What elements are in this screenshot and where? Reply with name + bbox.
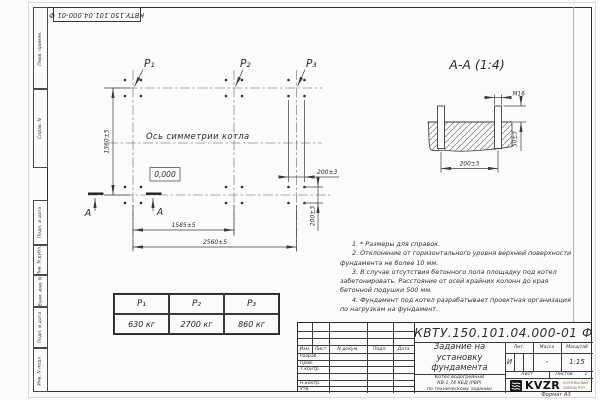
- listov-value: 1: [579, 371, 593, 378]
- margin-stamp-podp-data-2: Подп. и дата: [33, 307, 48, 348]
- load-label-p3: P₃: [306, 58, 317, 70]
- margin-stamp-label: Подп. и дата: [38, 207, 43, 238]
- section-view-arrows: [95, 198, 153, 211]
- load-table-value-p1: 630 кг: [114, 314, 169, 334]
- title-line-3: фундамента: [431, 363, 487, 374]
- anchor-bolt-left: [438, 106, 445, 149]
- company-line-2: ЗАВОД РЭТ: [563, 386, 588, 391]
- load-label-p2: P₂: [240, 58, 251, 70]
- dim-200-top-value: 200±3: [317, 169, 337, 176]
- load-leaders: [135, 70, 306, 87]
- anchor-bolt-groups: [124, 79, 306, 205]
- title-block: Изм. Лист N докум. Подп. Дата Разраб. Пр…: [297, 322, 592, 392]
- section-letter-1: А: [84, 208, 92, 219]
- kvzr-logo-icon: [510, 380, 522, 392]
- note-3: 3. В случае отсутствия бетонного пола пл…: [340, 268, 572, 296]
- margin-stamp-perv-primen: Перв. примен.: [33, 7, 48, 89]
- load-table-value-p2: 2700 кг: [169, 314, 224, 334]
- dim-m16: [485, 95, 511, 105]
- col-podp: Подп.: [367, 345, 393, 353]
- load-table-value-p3: 860 кг: [224, 314, 279, 334]
- dim-50-value: 50±3: [513, 131, 519, 147]
- masshtab-value: 1:15: [561, 353, 593, 371]
- product-line-3: по техническому заданию: [427, 387, 492, 393]
- col-n-dokum: N докум.: [329, 345, 367, 353]
- anchor-bolt-right: [495, 106, 502, 149]
- format-note: Формат А3: [516, 392, 596, 398]
- dim-1360-value: 1360±5: [104, 129, 111, 153]
- load-table-header-p3: P₃: [224, 294, 279, 314]
- margin-stamp-label: Подп. и дата: [38, 312, 43, 343]
- dim-2560-value: 2560±5: [203, 239, 227, 246]
- title-line-1: Задание на: [431, 342, 487, 353]
- drawing-title: Задание на установку фундамента: [431, 342, 487, 374]
- margin-stamp-label: Перв. примен.: [38, 31, 43, 66]
- margin-stamp-inv-dubl: Инв. N дубл.: [33, 245, 48, 275]
- dim-1585-value: 1585±5: [171, 222, 195, 229]
- company-name: КОТЕЛЬНЫЙ ЗАВОД РЭТ: [563, 381, 588, 390]
- margin-stamp-sprav-n: Справ. N: [33, 89, 48, 168]
- dim-200-section-value: 200±3: [460, 162, 480, 168]
- margin-stamp-podp-data-1: Подп. и дата: [33, 200, 48, 245]
- drawing-sheet: Перв. примен. Справ. N Подп. и дата Инв.…: [0, 0, 600, 400]
- note-4: 4. Фундамент под котел разрабатывает про…: [340, 296, 572, 315]
- row-blank: [298, 373, 329, 380]
- dim-200-right-value: 200±3: [310, 206, 317, 226]
- margin-stamp-label: Взам. инв. N: [38, 276, 43, 306]
- margin-stamp-label: Инв. N дубл.: [38, 245, 43, 275]
- load-table: P₁ P₂ P₃ 630 кг 2700 кг 860 кг: [113, 293, 280, 335]
- section-title: А-А (1:4): [448, 57, 504, 72]
- note-2: 2. Отклонение от горизонтального уровня …: [340, 249, 572, 268]
- row-razrab: Разраб.: [298, 353, 329, 360]
- margin-stamp-vzam-inv: Взам. инв. N: [33, 275, 48, 307]
- note-1: 1. * Размеры для справок.: [340, 240, 572, 249]
- row-utv: Утв.: [298, 386, 329, 393]
- doc-number: КВТУ.150.101.04.000-01 Ф: [414, 323, 593, 342]
- list-label: Лист: [505, 371, 549, 378]
- notes-block: 1. * Размеры для справок. 2. Отклонение …: [340, 240, 572, 314]
- title-line-2: установку: [431, 353, 487, 364]
- massa-header: Масса: [533, 342, 561, 353]
- load-table-header-p2: P₂: [169, 294, 224, 314]
- load-label-p1: P₁: [144, 58, 155, 70]
- col-list: Лист: [312, 345, 329, 353]
- col-data: Дата: [393, 345, 414, 353]
- masshtab-header: Масштаб: [561, 342, 593, 353]
- axis-of-symmetry-label: Ось симметрии котла: [146, 131, 250, 141]
- kvzr-logo-text: KVZR: [525, 379, 560, 392]
- section-letter-2: А: [156, 207, 164, 218]
- thread-callout: М16: [513, 92, 526, 98]
- product-name: Котел водогрейный КВ-1,74 КБД (РВР) по т…: [427, 375, 492, 393]
- margin-stamp-label: Инв. N подл.: [38, 355, 43, 385]
- load-table-header-p1: P₁: [114, 294, 169, 314]
- lit-header: Лит.: [505, 342, 533, 353]
- dim-1585: [133, 205, 234, 235]
- level-mark-value: 0,000: [154, 170, 176, 179]
- margin-stamp-label: Справ. N: [38, 118, 43, 139]
- col-izm: Изм.: [298, 345, 312, 353]
- lit-value: И: [505, 353, 514, 371]
- massa-value: -: [533, 353, 561, 371]
- product-line-1: Котел водогрейный: [427, 375, 492, 381]
- row-t-kontr: Т.контр.: [298, 366, 329, 373]
- listov-label: Листов: [549, 371, 579, 378]
- margin-stamp-inv-podl: Инв. N подл.: [33, 348, 48, 392]
